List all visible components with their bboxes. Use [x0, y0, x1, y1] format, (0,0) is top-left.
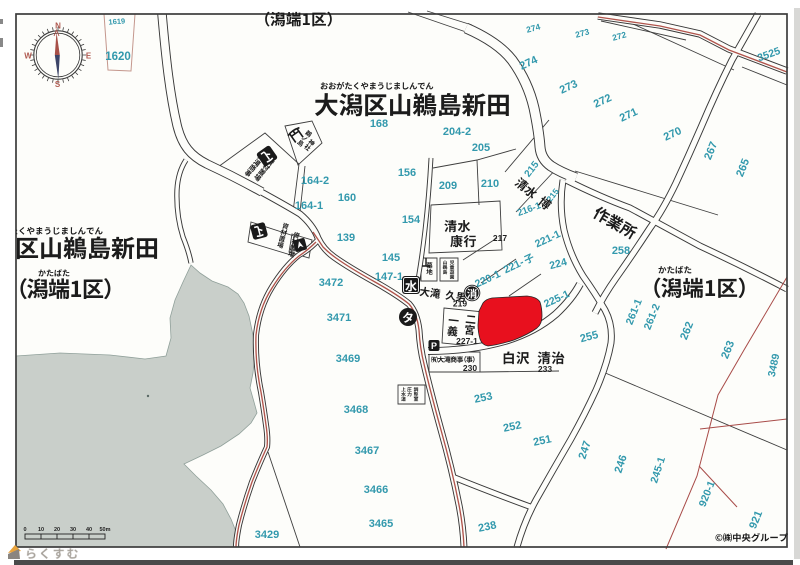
svg-text:50m: 50m	[99, 527, 110, 533]
svg-text:233: 233	[538, 364, 552, 374]
svg-text:227-1: 227-1	[456, 336, 478, 346]
svg-text:3465: 3465	[369, 518, 393, 530]
svg-text:3471: 3471	[327, 312, 351, 324]
svg-text:147-1: 147-1	[375, 271, 403, 283]
svg-text:204-2: 204-2	[443, 126, 471, 138]
svg-text:164-2: 164-2	[301, 175, 329, 187]
svg-text:145: 145	[382, 252, 400, 264]
svg-text:217: 217	[493, 233, 507, 243]
svg-text:156: 156	[398, 167, 416, 179]
svg-text:0: 0	[23, 527, 26, 533]
svg-text:219: 219	[453, 299, 467, 309]
svg-text:3429: 3429	[255, 529, 279, 541]
svg-text:160: 160	[338, 192, 356, 204]
svg-text:3466: 3466	[364, 484, 388, 496]
svg-text:1619: 1619	[108, 16, 125, 26]
svg-text:S: S	[55, 80, 61, 89]
svg-text:30: 30	[70, 527, 76, 533]
svg-text:40: 40	[86, 527, 92, 533]
svg-text:154: 154	[402, 214, 421, 226]
svg-text:164-1: 164-1	[295, 200, 323, 212]
svg-text:258: 258	[612, 245, 630, 257]
svg-text:139: 139	[337, 232, 355, 244]
svg-text:230: 230	[463, 363, 477, 373]
svg-text:E: E	[86, 52, 92, 61]
svg-text:N: N	[55, 22, 61, 31]
svg-text:210: 210	[481, 178, 499, 190]
svg-text:1620: 1620	[105, 51, 131, 63]
svg-text:3472: 3472	[319, 277, 343, 289]
svg-text:10: 10	[38, 527, 44, 533]
svg-text:P: P	[431, 341, 437, 351]
svg-text:3467: 3467	[355, 445, 379, 457]
svg-text:209: 209	[439, 180, 457, 192]
svg-text:205: 205	[472, 142, 490, 154]
svg-text:20: 20	[54, 527, 60, 533]
svg-text:3469: 3469	[336, 353, 360, 365]
svg-text:W: W	[24, 52, 32, 61]
svg-text:3468: 3468	[344, 404, 368, 416]
svg-text:168: 168	[370, 118, 388, 130]
